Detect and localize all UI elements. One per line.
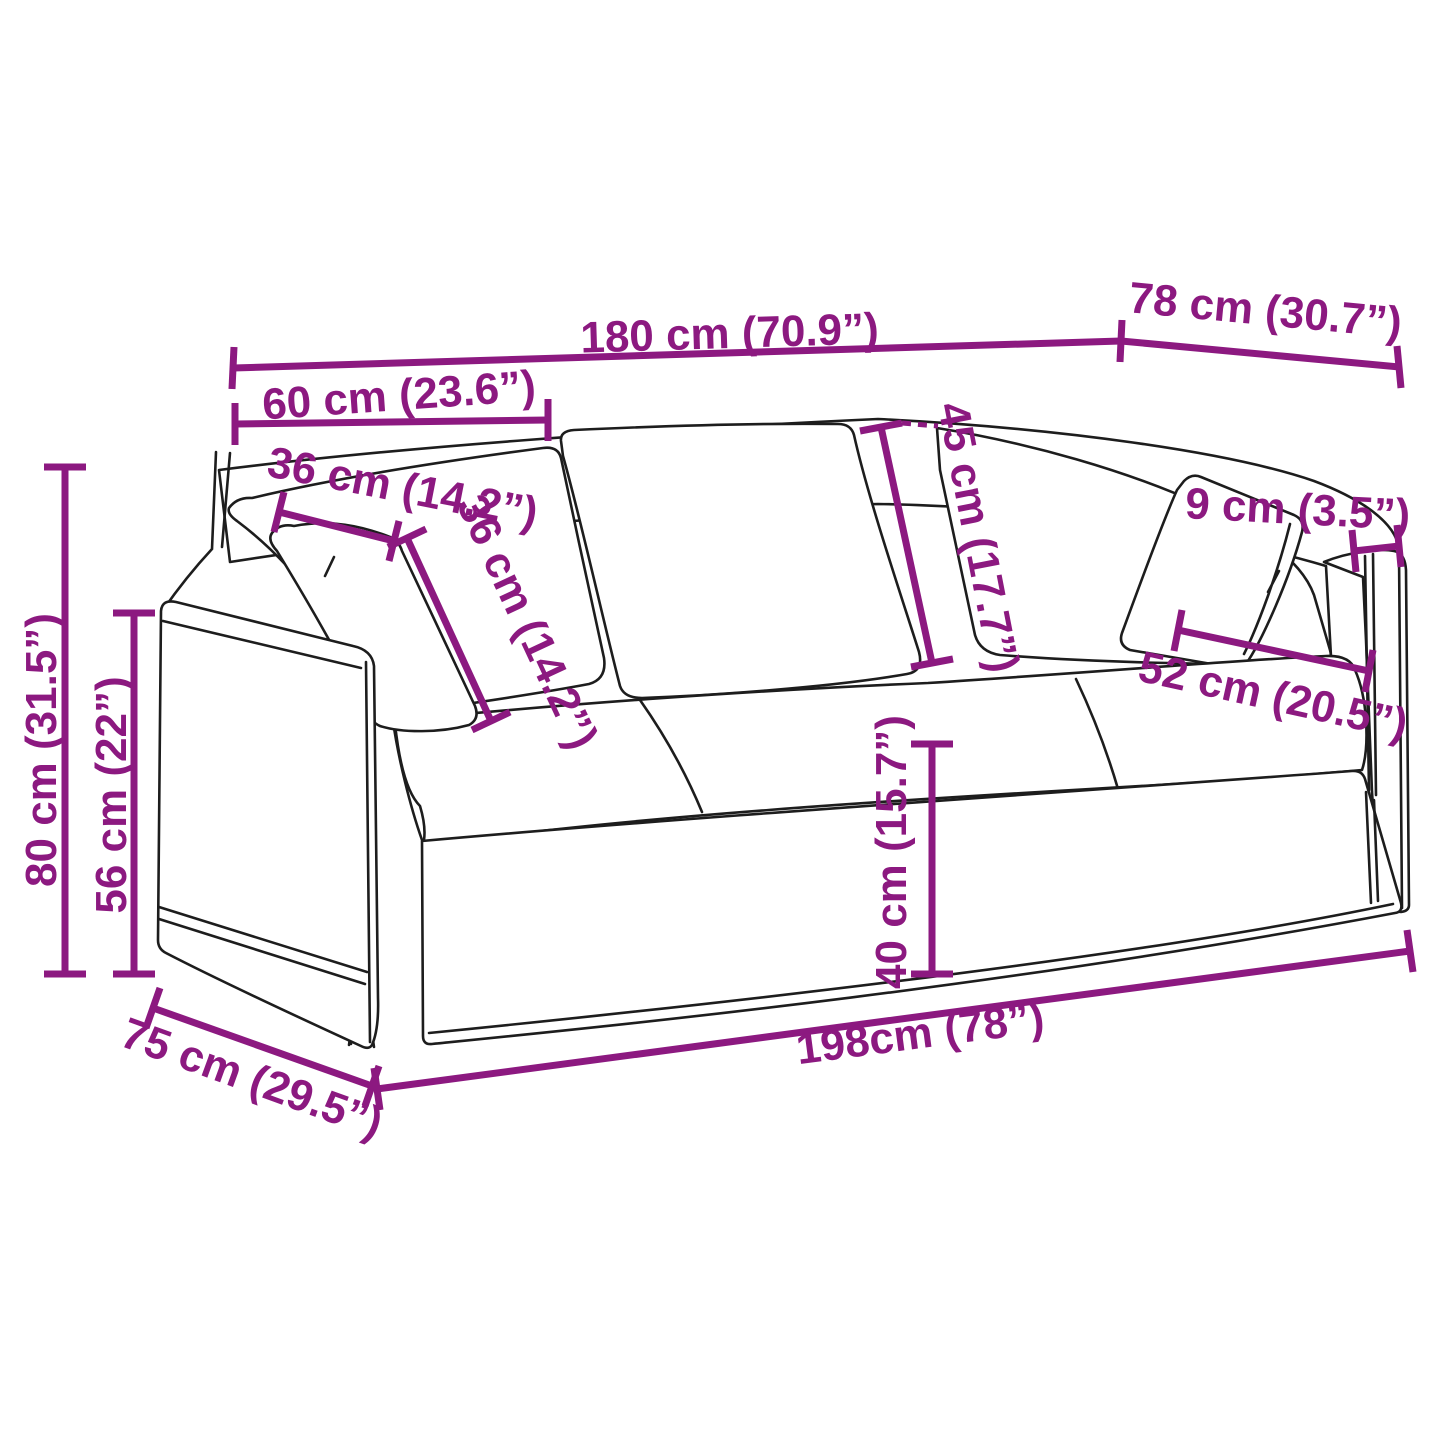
dimension-label-top-depth: 78 cm (30.7”)	[1127, 273, 1404, 348]
dimension-label-back-width: 180 cm (70.9”)	[580, 304, 880, 362]
dimension-armrest-height: 56 cm (22”)	[87, 613, 155, 974]
sofa-left-armrest	[158, 601, 378, 1047]
dimension-top-depth: 78 cm (30.7”)	[1121, 273, 1404, 388]
dimension-label-armrest-height: 56 cm (22”)	[87, 676, 136, 913]
dimension-label-total-width: 198cm (78”)	[793, 993, 1047, 1074]
sofa-dimension-diagram: 180 cm (70.9”) 78 cm (30.7”) 60 cm (23.6…	[0, 0, 1445, 1445]
dimension-label-seat-height: 40 cm (15.7”)	[867, 715, 916, 989]
dimension-label-total-height: 80 cm (31.5”)	[17, 613, 66, 887]
dimension-total-height: 80 cm (31.5”)	[17, 467, 86, 974]
dimension-backrest-section-width: 60 cm (23.6”)	[235, 362, 548, 445]
